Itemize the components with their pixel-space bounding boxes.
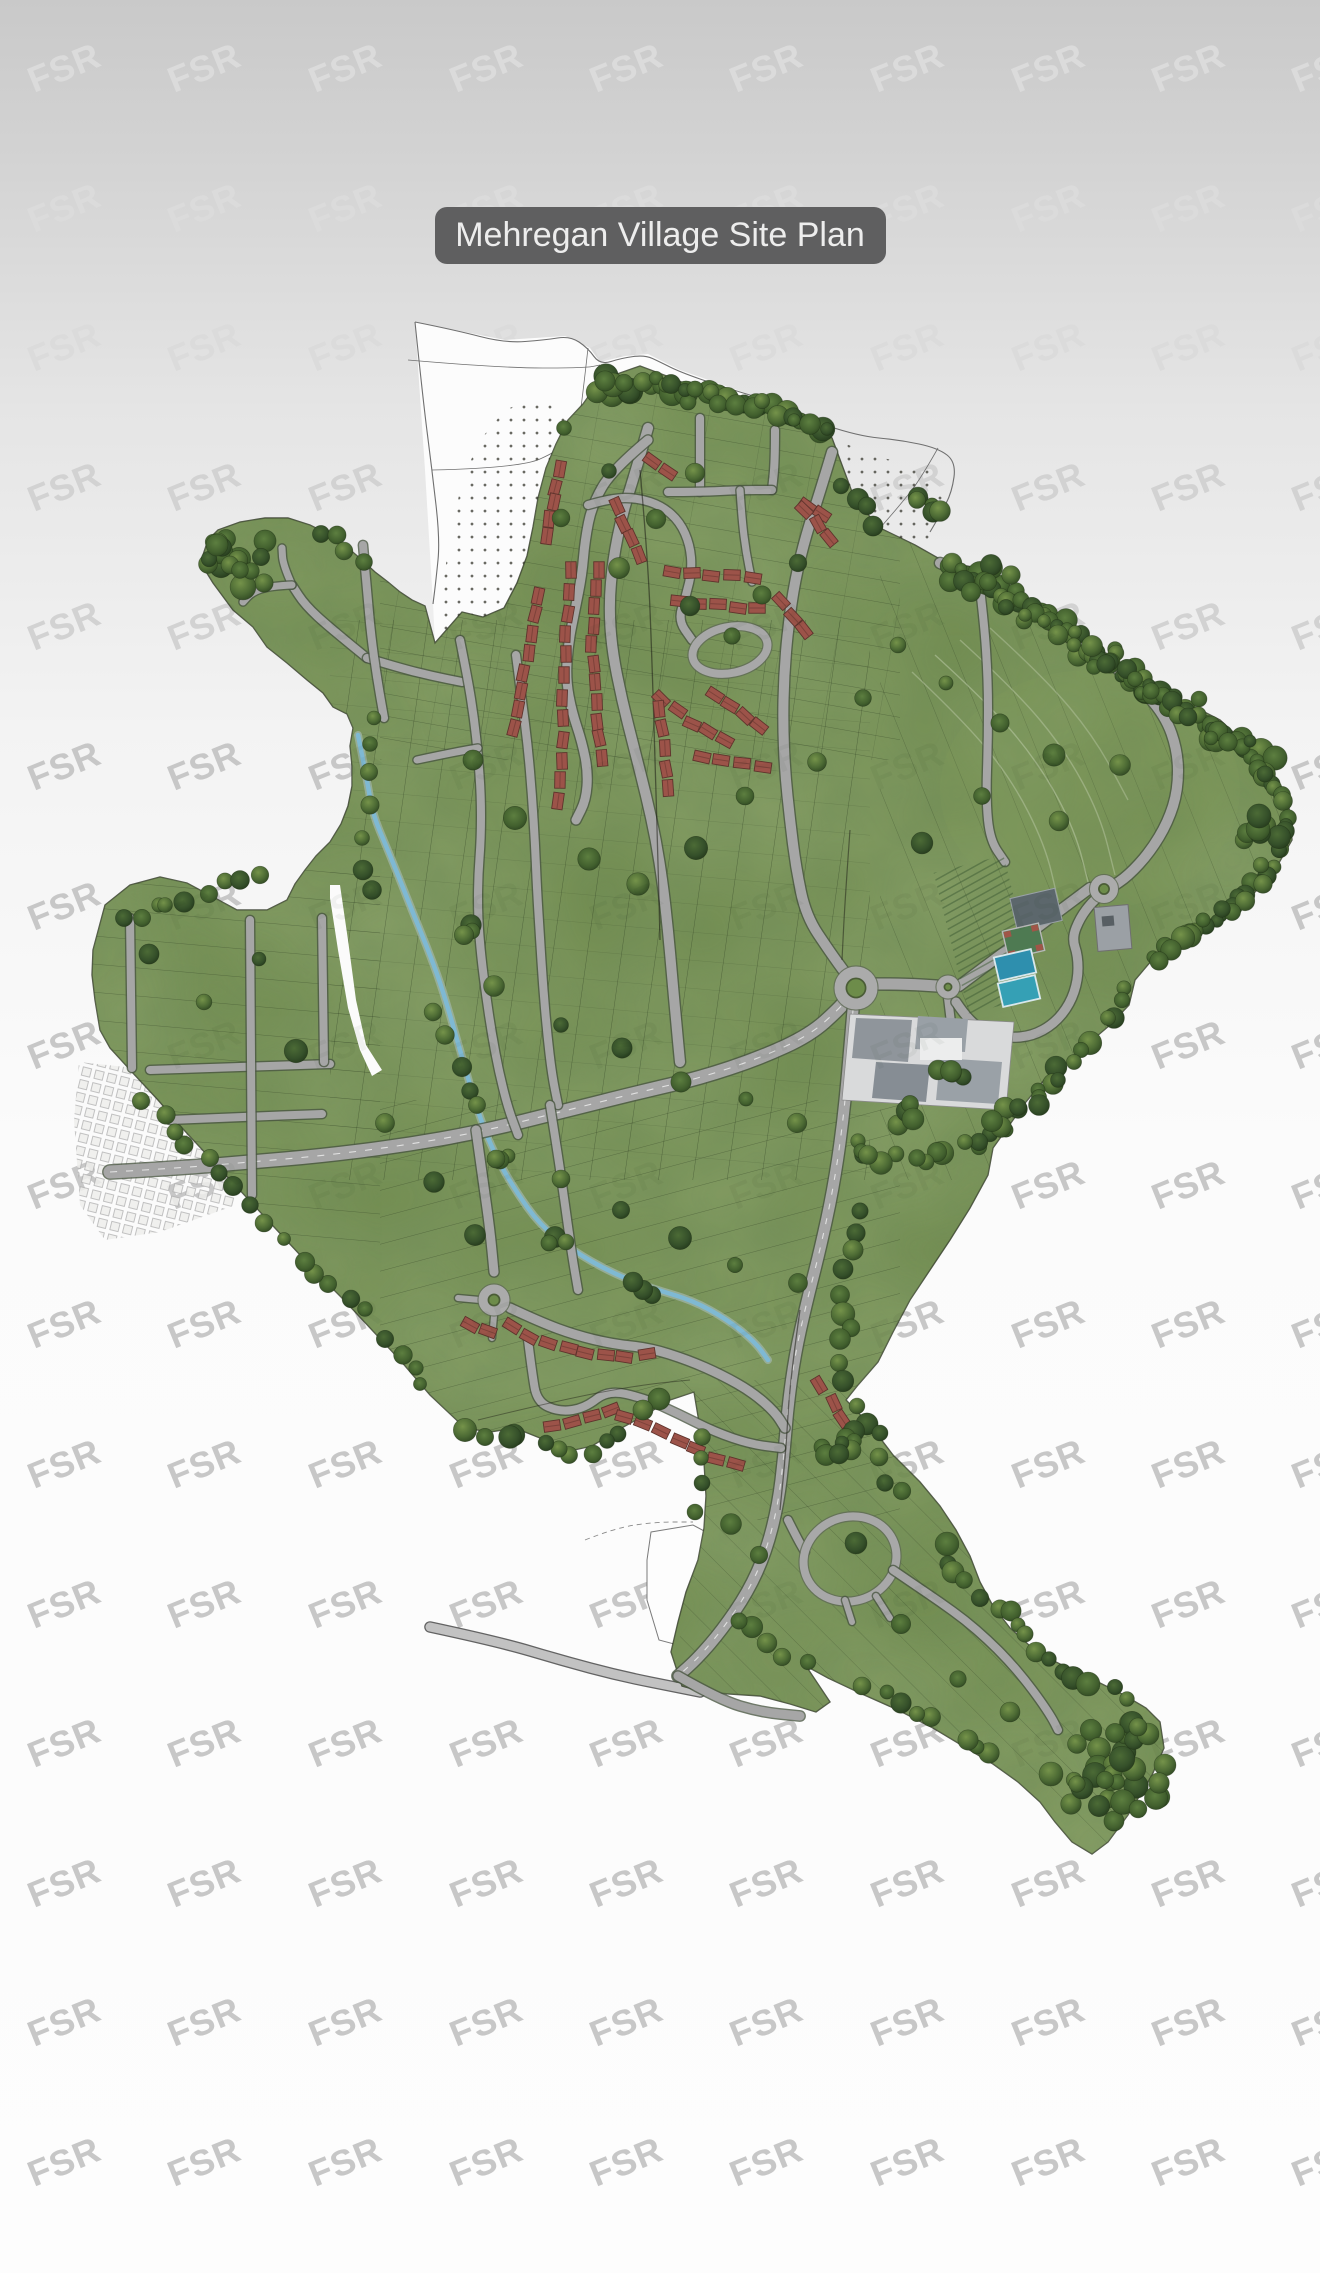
svg-text:Mehregan Village Site Plan: Mehregan Village Site Plan — [455, 216, 865, 254]
